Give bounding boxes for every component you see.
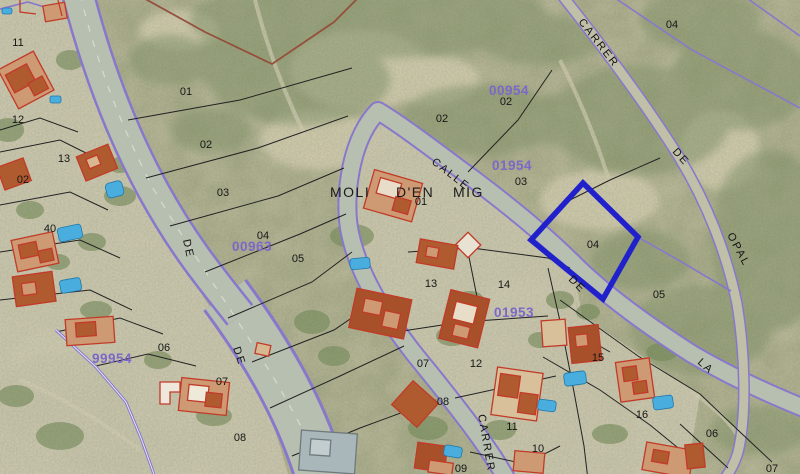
parcel-number-label: 05 [653, 289, 665, 301]
parcel-number-label: 13 [58, 153, 70, 165]
parcel-number-label: 16 [636, 409, 648, 421]
parcel-number-label: 03 [515, 176, 527, 188]
parcel-number-label: 02 [200, 139, 212, 151]
parcel-number-label: 04 [587, 239, 599, 251]
parcel-number-label: 04 [257, 230, 269, 242]
parcel-number-label: 02 [500, 96, 512, 108]
parcel-number-label: 07 [216, 376, 228, 388]
sheet-code-label: 01953 [494, 305, 534, 320]
parcel-number-label: 14 [498, 279, 510, 291]
parcel-number-label: 02 [17, 174, 29, 186]
parcel-number-label: 10 [532, 443, 544, 455]
parcel-number-label: 01 [180, 86, 192, 98]
parcel-number-label: 07 [766, 463, 778, 474]
parcel-number-label: 11 [506, 421, 517, 433]
sheet-code-label: 01954 [492, 158, 532, 173]
parcel-number-label: 02 [436, 113, 448, 125]
street-name-label: MIG [453, 184, 484, 200]
parcel-number-label: 06 [158, 342, 170, 354]
parcel-number-label: 13 [425, 278, 437, 290]
parcel-number-label: 40 [44, 223, 56, 235]
cadastral-map[interactable]: CARRERDEOPALCALLEMOLID'ENMIGDELADEDECARR… [0, 0, 800, 474]
parcel-number-label: 03 [217, 187, 229, 199]
parcel-number-label: 07 [417, 358, 429, 370]
parcel-number-label: 05 [292, 253, 304, 265]
parcel-number-label: 11 [12, 37, 23, 49]
parcel-number-label: 01 [415, 196, 427, 208]
parcel-number-label: 15 [592, 352, 604, 364]
parcel-number-label: 04 [666, 19, 678, 31]
sheet-code-label: 99954 [92, 351, 132, 366]
map-viewport[interactable]: CARRERDEOPALCALLEMOLID'ENMIGDELADEDECARR… [0, 0, 800, 474]
parcel-number-label: 06 [706, 428, 718, 440]
parcel-number-label: 12 [12, 114, 24, 126]
parcel-number-label: 09 [455, 463, 467, 474]
parcel-number-label: 08 [234, 432, 246, 444]
parcel-number-label: 12 [470, 358, 482, 370]
street-name-label: MOLI [330, 184, 370, 200]
parcel-number-label: 08 [437, 396, 449, 408]
